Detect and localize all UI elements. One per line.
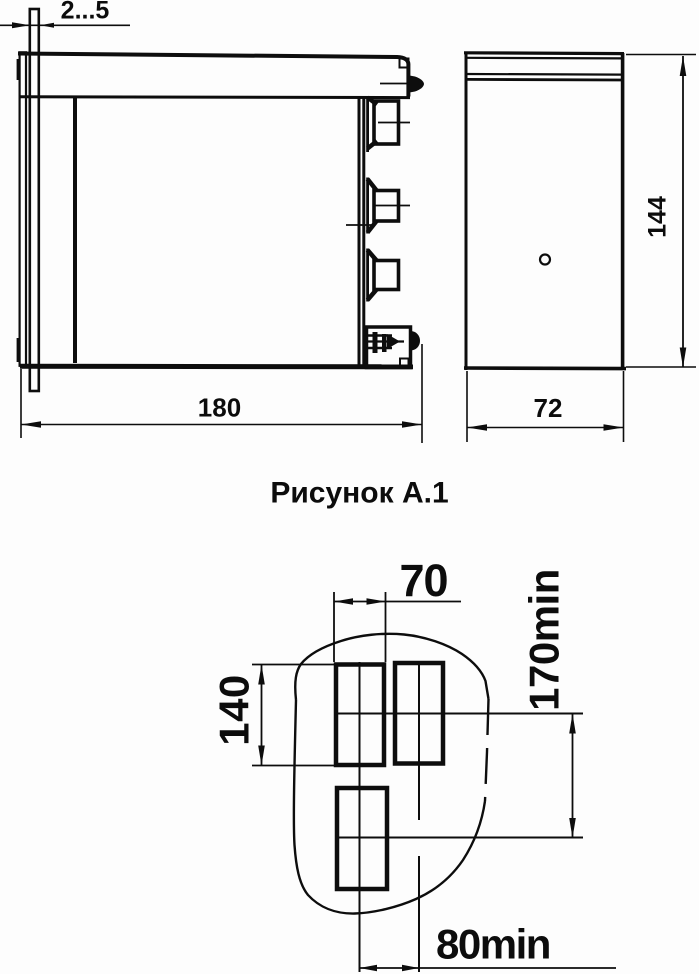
svg-text:Рисунок А.1: Рисунок А.1 (270, 477, 448, 510)
svg-text:2...5: 2...5 (61, 0, 110, 25)
svg-text:140: 140 (211, 674, 258, 746)
svg-text:72: 72 (534, 393, 563, 423)
svg-text:180: 180 (198, 393, 241, 423)
svg-text:170min: 170min (521, 569, 568, 711)
svg-text:80min: 80min (436, 921, 550, 968)
svg-text:70: 70 (399, 555, 447, 606)
svg-text:144: 144 (644, 196, 672, 238)
